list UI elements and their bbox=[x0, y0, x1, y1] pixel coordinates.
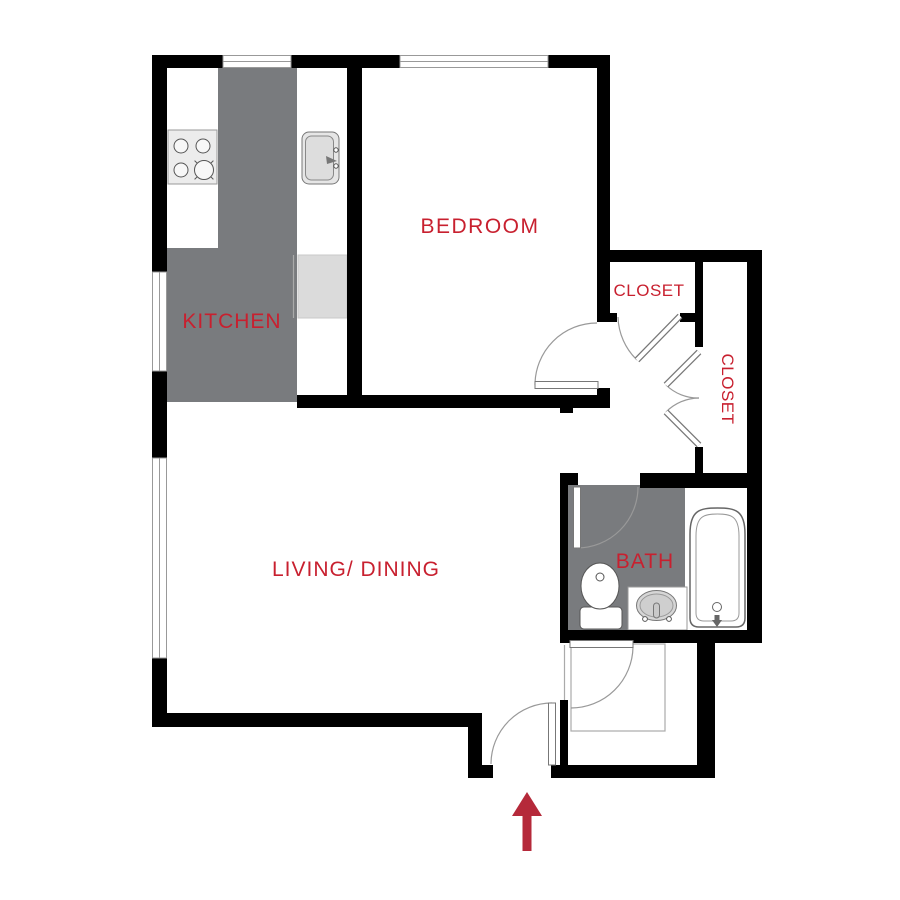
tub-faucet-base bbox=[715, 615, 720, 620]
wall-segment bbox=[291, 55, 400, 68]
entrance-arrow-icon bbox=[512, 792, 542, 851]
door-leaf bbox=[535, 382, 598, 389]
window bbox=[153, 458, 167, 658]
wall-segment bbox=[697, 632, 715, 778]
bedroom-door bbox=[535, 323, 598, 389]
wall-segment bbox=[152, 713, 482, 727]
door-swing-arc bbox=[618, 317, 637, 360]
wall-segment bbox=[747, 250, 762, 643]
wall-segment bbox=[560, 473, 578, 485]
wall-segment bbox=[597, 250, 762, 262]
door-leaf-fill bbox=[637, 316, 680, 360]
window bbox=[223, 56, 291, 68]
bathtub-icon bbox=[690, 508, 745, 627]
sink-knob bbox=[334, 164, 338, 168]
vanity-knob bbox=[643, 617, 648, 622]
wall-segment bbox=[152, 55, 223, 68]
door-swing-arc bbox=[571, 647, 633, 708]
burner bbox=[195, 161, 214, 180]
window bbox=[400, 56, 548, 68]
entry-closet-outline bbox=[571, 644, 665, 731]
wall-segment bbox=[597, 55, 610, 322]
dishwasher-icon bbox=[298, 255, 347, 318]
wall-segment bbox=[695, 447, 703, 473]
wall-segment bbox=[640, 473, 747, 488]
wall-segment bbox=[560, 402, 573, 413]
door-swing-arc bbox=[666, 398, 699, 412]
door-leaf bbox=[549, 703, 556, 765]
door-swing-arc bbox=[535, 323, 597, 385]
arrow-head bbox=[512, 792, 542, 816]
burner bbox=[196, 139, 210, 153]
entry-closet-door bbox=[570, 641, 633, 709]
burner bbox=[174, 139, 188, 153]
window bbox=[153, 272, 167, 371]
room-label-bath: BATH bbox=[616, 550, 674, 574]
arrow-stem bbox=[523, 814, 532, 851]
stove-icon bbox=[168, 130, 217, 184]
floor-plan: KITCHEN BEDROOM LIVING/ DINING CLOSET CL… bbox=[0, 0, 900, 900]
kitchen-sink-icon bbox=[302, 132, 339, 184]
wall-segment bbox=[468, 765, 493, 778]
vanity-sink-icon bbox=[628, 587, 687, 630]
entry-door bbox=[491, 703, 556, 765]
burner bbox=[174, 163, 188, 177]
wall-segment bbox=[468, 727, 482, 768]
room-label-kitchen: KITCHEN bbox=[182, 310, 281, 334]
vanity-faucet bbox=[654, 603, 660, 618]
door-swing-arc bbox=[491, 703, 552, 764]
door-leaf-fill bbox=[666, 352, 699, 385]
wall-segment bbox=[347, 68, 362, 395]
room-label-closet-upper: CLOSET bbox=[613, 281, 684, 301]
door-leaf bbox=[574, 487, 581, 548]
wall-segment bbox=[560, 485, 568, 630]
wall-segment bbox=[560, 700, 568, 765]
wall-segment bbox=[597, 313, 617, 322]
wall-segment bbox=[551, 765, 715, 778]
kitchen-floor bbox=[218, 68, 297, 248]
door-leaf-fill bbox=[666, 412, 699, 445]
door-leaf bbox=[570, 641, 633, 648]
toilet-tank bbox=[580, 607, 622, 629]
sink-knob bbox=[334, 148, 338, 152]
room-label-bedroom: BEDROOM bbox=[420, 215, 539, 239]
upper-closet-door bbox=[618, 316, 680, 360]
wall-segment bbox=[152, 371, 167, 458]
toilet-bowl bbox=[581, 563, 619, 609]
wall-segment bbox=[695, 262, 703, 347]
room-label-living-dining: LIVING/ DINING bbox=[272, 558, 440, 582]
wall-segment bbox=[152, 68, 167, 272]
vanity-knob bbox=[667, 617, 672, 622]
tub-drain bbox=[713, 603, 722, 612]
room-label-closet-side: CLOSET bbox=[717, 353, 737, 424]
floor-plan-drawing bbox=[0, 0, 900, 900]
door-swing-arc bbox=[666, 385, 699, 398]
side-closet-double-door bbox=[666, 352, 699, 445]
